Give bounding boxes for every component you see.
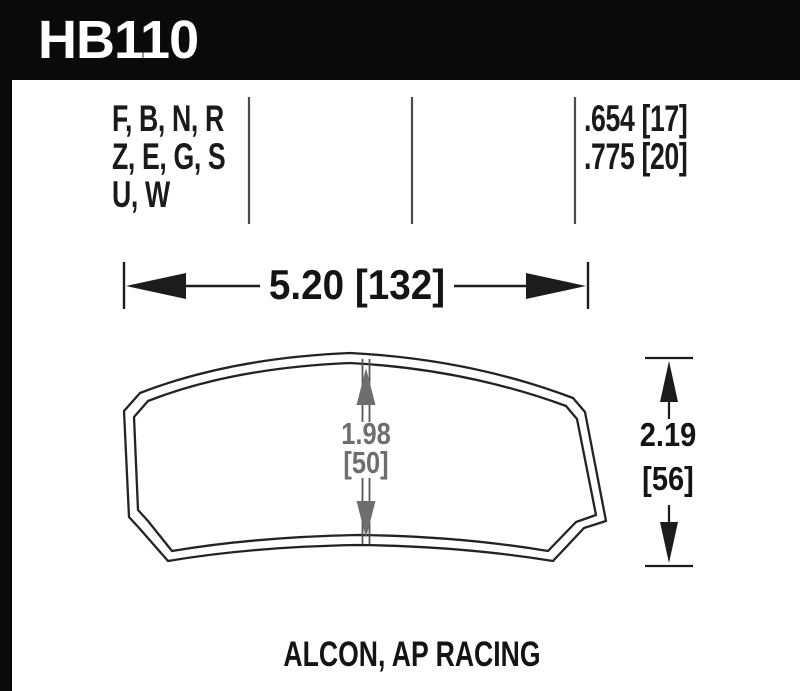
spec-sheet: HB110 F, B, N, R Z, E, G, S U, W .654 [1… xyxy=(0,0,800,691)
pad-height-mm: [50] xyxy=(284,448,448,477)
width-dimension-label: 5.20 [132] xyxy=(173,264,541,306)
pad-height-inches: 1.98 xyxy=(284,419,448,448)
overall-height-mm: [56] xyxy=(580,457,756,501)
arrowhead-down-icon xyxy=(357,501,376,538)
spec-table-dividers xyxy=(249,97,575,224)
overall-height-inches: 2.19 xyxy=(580,413,756,457)
technical-drawing xyxy=(0,0,800,691)
arrowhead-down-icon xyxy=(660,522,678,563)
applications-text: ALCON, AP RACING xyxy=(260,637,564,672)
arrowhead-up-icon xyxy=(357,368,376,405)
pad-height-dimension-label: 1.98 [50] xyxy=(284,419,448,477)
overall-height-dimension-label: 2.19 [56] xyxy=(580,413,756,501)
arrowhead-up-icon xyxy=(660,361,678,402)
